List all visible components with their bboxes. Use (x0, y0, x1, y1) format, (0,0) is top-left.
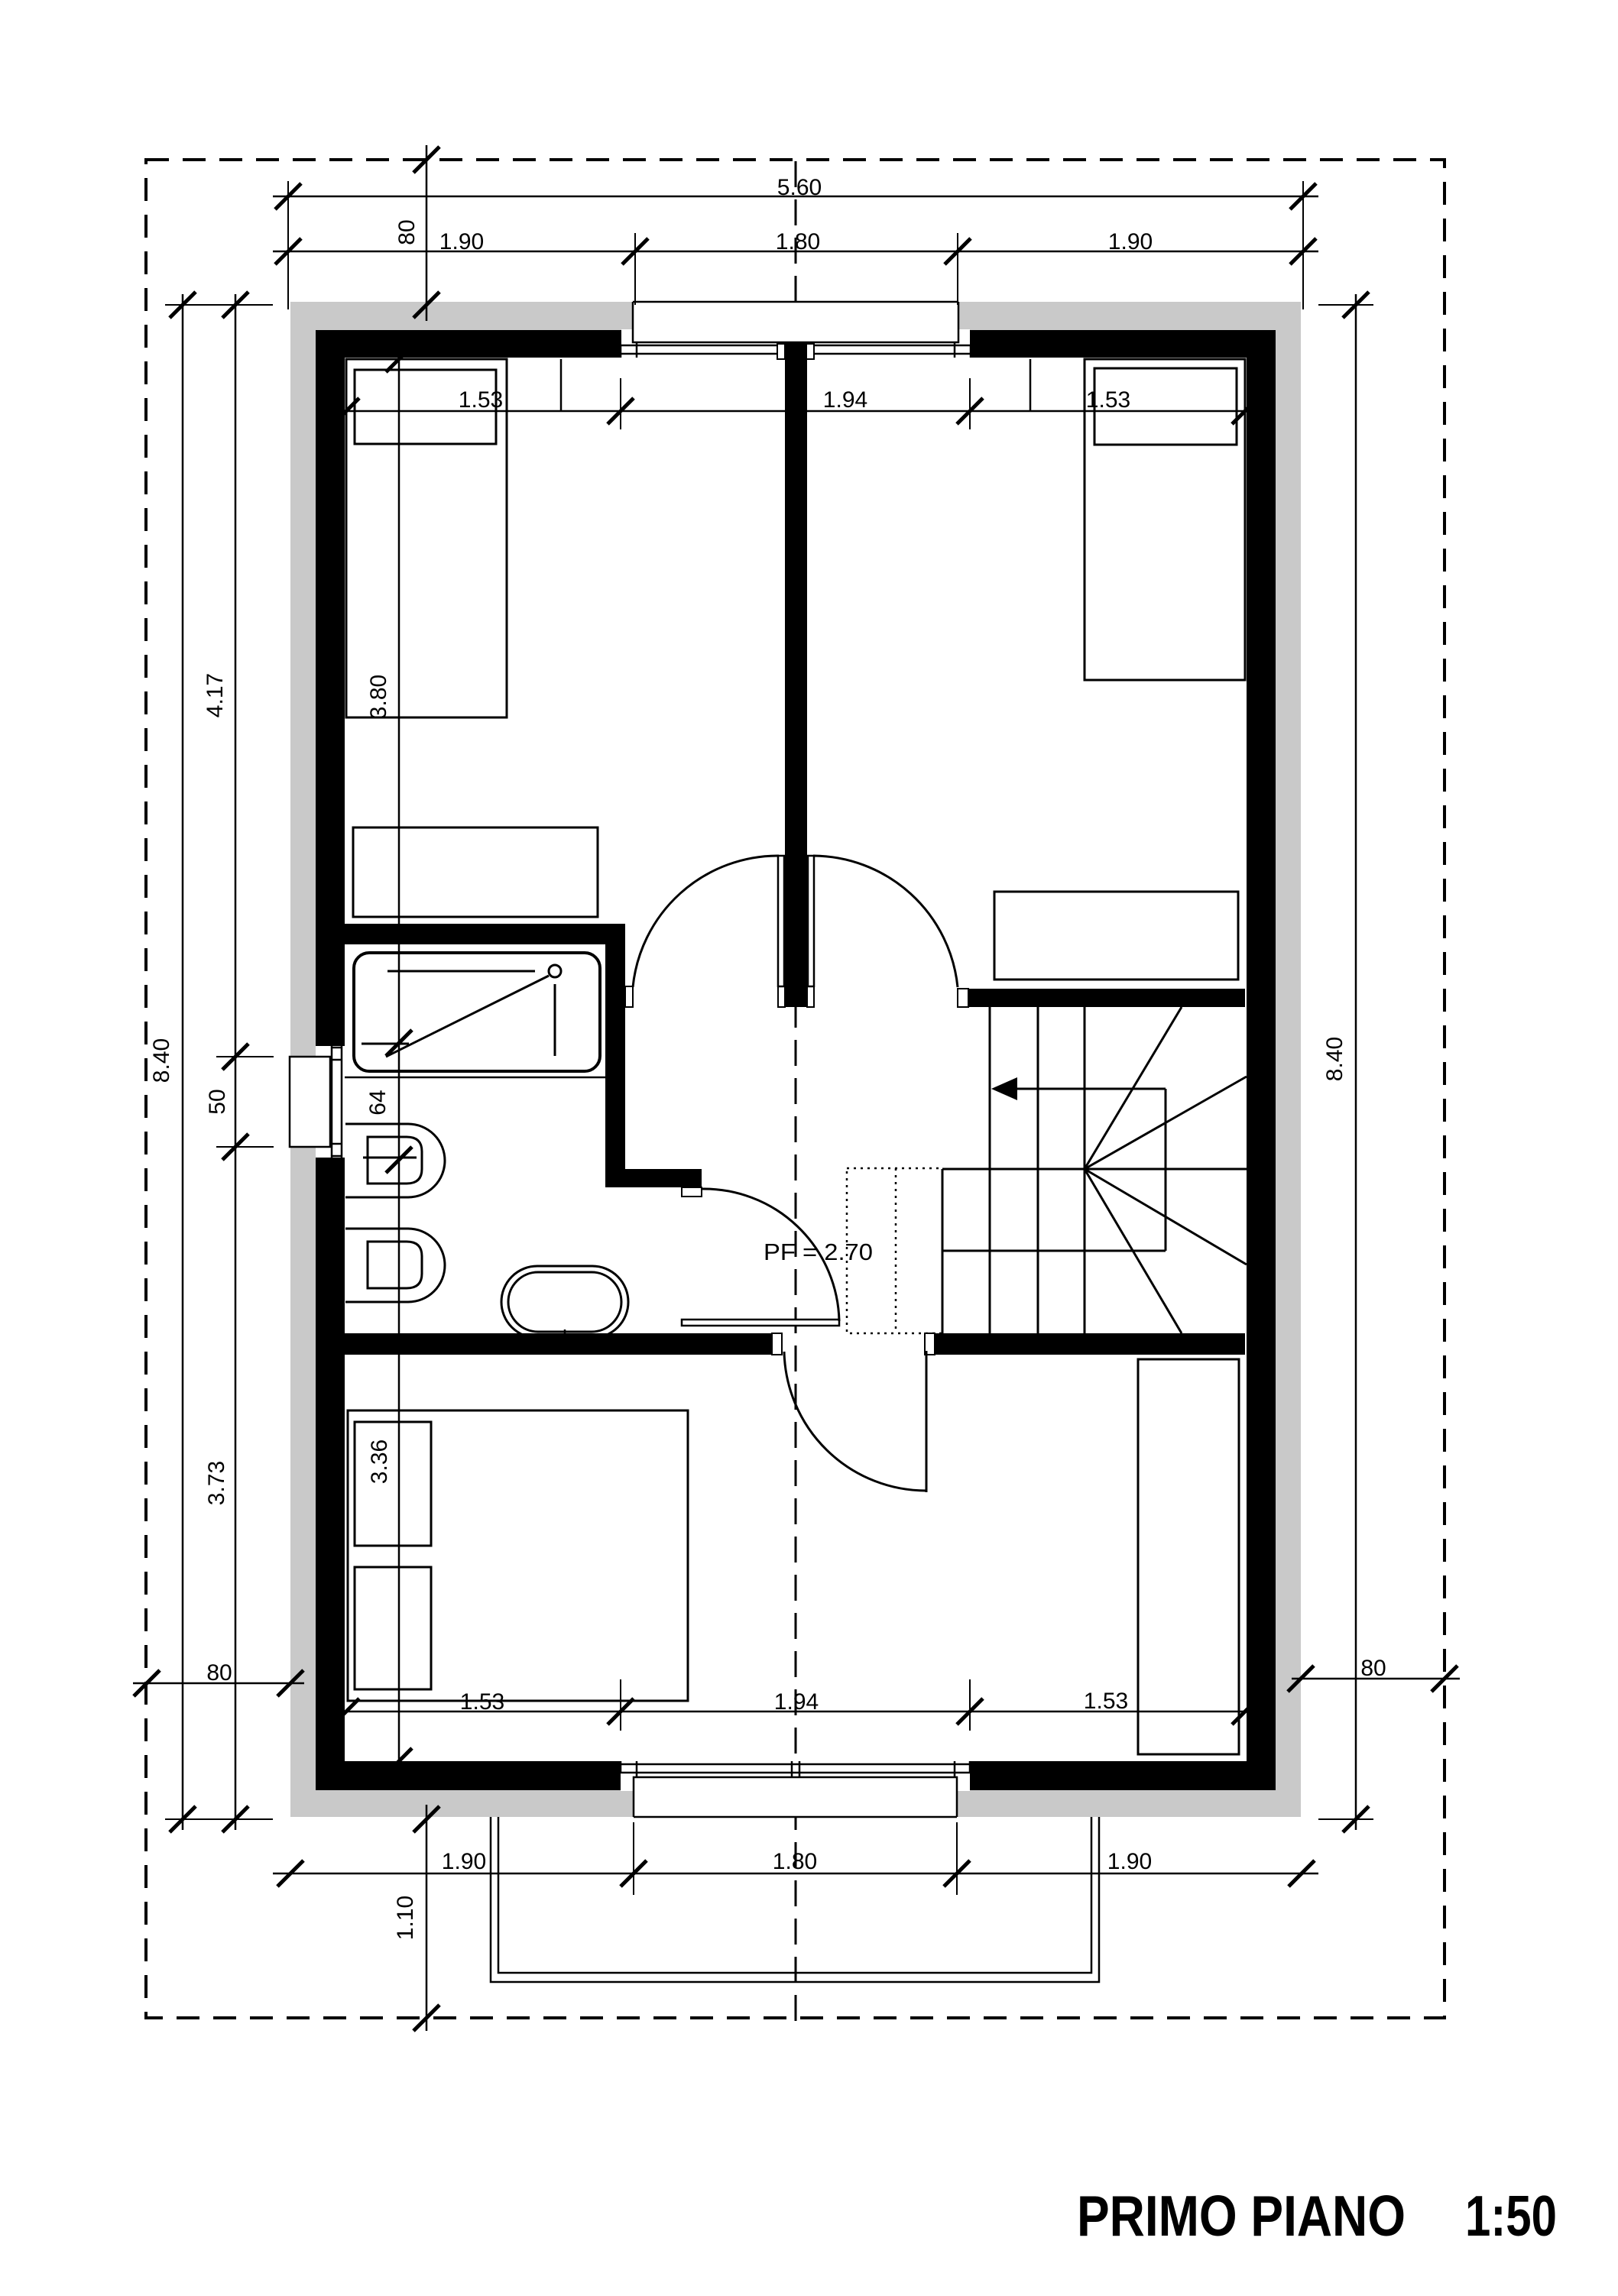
svg-text:1.90: 1.90 (1108, 229, 1153, 254)
svg-text:1.10: 1.10 (393, 1896, 418, 1940)
svg-text:4.17: 4.17 (203, 673, 228, 717)
svg-text:8.40: 8.40 (1322, 1037, 1347, 1081)
svg-text:80: 80 (206, 1660, 232, 1686)
svg-text:1.94: 1.94 (774, 1689, 819, 1715)
svg-text:1.90: 1.90 (442, 1849, 486, 1874)
svg-text:1.90: 1.90 (439, 229, 484, 254)
svg-text:1.53: 1.53 (460, 1689, 504, 1715)
svg-text:1.53: 1.53 (1084, 1689, 1128, 1714)
svg-text:1.94: 1.94 (823, 387, 867, 413)
svg-text:PF = 2.70: PF = 2.70 (764, 1239, 873, 1265)
svg-text:1.53: 1.53 (459, 387, 503, 413)
svg-text:1.80: 1.80 (773, 1849, 817, 1874)
svg-text:3.36: 3.36 (367, 1439, 392, 1484)
svg-text:8.40: 8.40 (149, 1038, 174, 1083)
svg-text:80: 80 (394, 219, 420, 244)
svg-text:3.80: 3.80 (366, 675, 391, 719)
svg-text:1.90: 1.90 (1107, 1849, 1152, 1874)
svg-text:1:50: 1:50 (1465, 2184, 1557, 2248)
svg-text:1.53: 1.53 (1086, 387, 1130, 413)
svg-text:5.60: 5.60 (777, 175, 822, 200)
svg-text:1.80: 1.80 (776, 229, 820, 254)
svg-text:50: 50 (205, 1089, 230, 1114)
svg-text:PRIMO PIANO: PRIMO PIANO (1077, 2184, 1406, 2248)
svg-text:3.73: 3.73 (204, 1461, 229, 1505)
svg-text:80: 80 (1360, 1656, 1386, 1681)
svg-text:64: 64 (365, 1090, 391, 1115)
